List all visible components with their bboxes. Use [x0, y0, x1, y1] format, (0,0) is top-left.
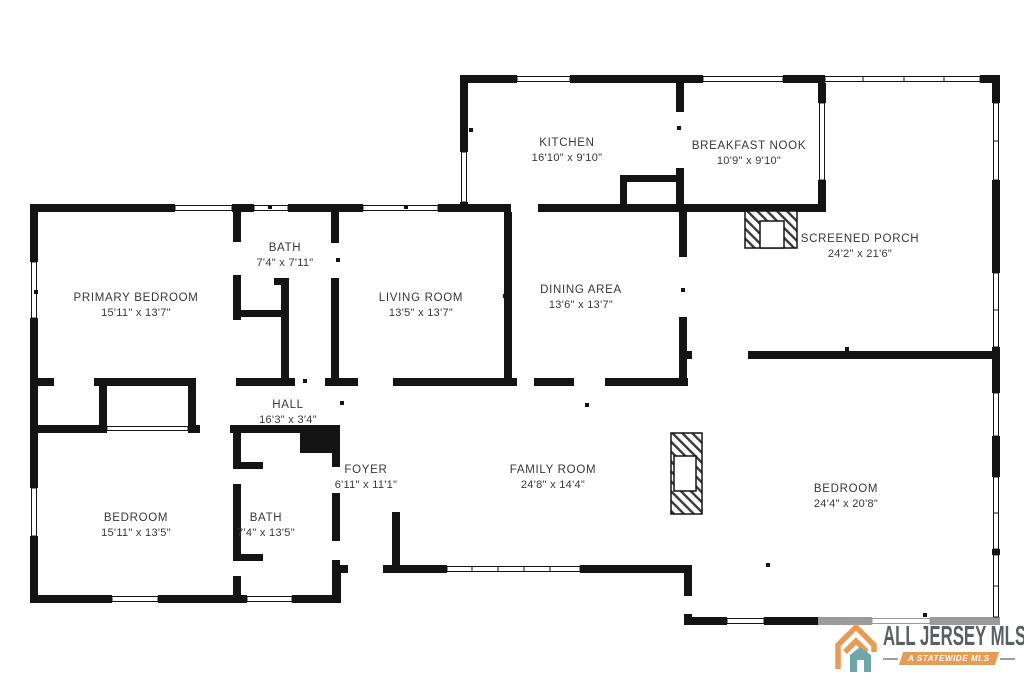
room-label-bath-upper: BATH 7'4" x 7'11" — [257, 241, 314, 270]
room-name: BEDROOM — [814, 482, 878, 497]
tagline-banner: A STATEWIDE MLS — [899, 652, 999, 665]
floorplan-screenshot: KITCHEN 16'10" x 9'10" BREAKFAST NOOK 10… — [0, 0, 1024, 682]
room-dimensions: 24'8" x 14'4" — [510, 478, 597, 493]
windows — [32, 77, 999, 624]
room-label-foyer: FOYER 6'11" x 11'1" — [335, 463, 398, 492]
room-label-living-room: LIVING ROOM 13'5" x 13'7" — [379, 291, 463, 320]
room-label-family-room: FAMILY ROOM 24'8" x 14'4" — [510, 463, 597, 492]
room-label-hall: HALL 16'3" x 3'4" — [259, 398, 317, 427]
porch-fireplace — [745, 211, 797, 248]
room-label-bedroom-right: BEDROOM 24'4" x 20'8" — [814, 482, 878, 511]
room-dimensions: 7'4" x 13'5" — [237, 526, 295, 541]
family-room-fireplace — [671, 433, 702, 514]
room-dimensions: 10'9" x 9'10" — [692, 154, 806, 169]
logo-tagline: A STATEWIDE MLS — [908, 654, 990, 663]
tagline-right-line — [1000, 658, 1015, 660]
room-label-dining-area: DINING AREA 13'6" x 13'7" — [540, 283, 622, 312]
room-dimensions: 13'6" x 13'7" — [540, 298, 622, 313]
room-name: BREAKFAST NOOK — [692, 139, 806, 154]
room-dimensions: 7'4" x 7'11" — [257, 256, 314, 271]
room-dimensions: 16'3" x 3'4" — [259, 413, 317, 428]
room-name: FOYER — [335, 463, 398, 478]
logo-title: ALL JERSEY MLS — [883, 621, 1024, 651]
room-label-primary-bedroom: PRIMARY BEDROOM 15'11" x 13'7" — [73, 291, 198, 320]
room-name: BATH — [237, 511, 295, 526]
all-jersey-mls-logo: ALL JERSEY MLS A STATEWIDE MLS — [834, 621, 1015, 673]
room-label-bedroom-left: BEDROOM 15'11" x 13'5" — [101, 511, 171, 540]
room-name: FAMILY ROOM — [510, 463, 597, 478]
house-logo-icon — [834, 621, 878, 673]
tagline-left-line — [883, 658, 898, 660]
room-dimensions: 24'2" x 21'6" — [801, 247, 919, 262]
room-name: BEDROOM — [101, 511, 171, 526]
room-dimensions: 15'11" x 13'7" — [73, 306, 198, 321]
dimension-dots — [34, 126, 927, 617]
logo-tagline-row: A STATEWIDE MLS — [883, 652, 1015, 665]
room-label-bath-lower: BATH 7'4" x 13'5" — [237, 511, 295, 540]
room-name: PRIMARY BEDROOM — [73, 291, 198, 306]
room-dimensions: 6'11" x 11'1" — [335, 478, 398, 493]
room-dimensions: 24'4" x 20'8" — [814, 497, 878, 512]
room-name: DINING AREA — [540, 283, 622, 298]
room-name: LIVING ROOM — [379, 291, 463, 306]
room-label-breakfast-nook: BREAKFAST NOOK 10'9" x 9'10" — [692, 139, 806, 168]
floor-plan-drawing — [0, 0, 1024, 682]
room-dimensions: 13'5" x 13'7" — [379, 306, 463, 321]
room-name: HALL — [259, 398, 317, 413]
room-dimensions: 16'10" x 9'10" — [532, 151, 603, 166]
room-label-kitchen: KITCHEN 16'10" x 9'10" — [532, 136, 603, 165]
room-name: KITCHEN — [532, 136, 603, 151]
room-dimensions: 15'11" x 13'5" — [101, 526, 171, 541]
room-label-screened-porch: SCREENED PORCH 24'2" x 21'6" — [801, 232, 919, 261]
room-name: SCREENED PORCH — [801, 232, 919, 247]
exterior-walls — [30, 75, 1000, 625]
room-name: BATH — [257, 241, 314, 256]
